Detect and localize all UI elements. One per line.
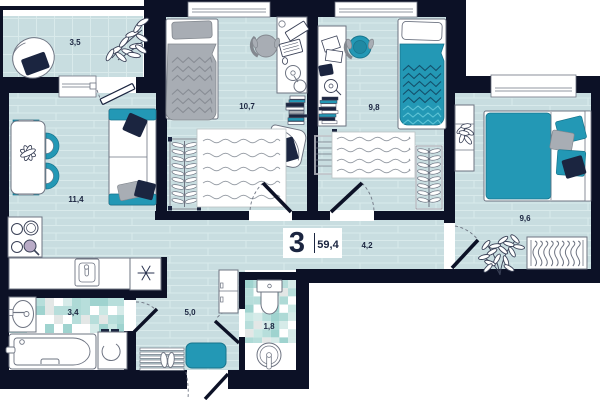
svg-text:1,8: 1,8	[263, 322, 275, 331]
svg-text:5,0: 5,0	[184, 308, 196, 317]
svg-text:9,8: 9,8	[368, 103, 380, 112]
svg-text:9,6: 9,6	[519, 214, 531, 223]
svg-text:3,4: 3,4	[67, 308, 79, 317]
svg-text:3,5: 3,5	[69, 38, 81, 47]
svg-text:59,4: 59,4	[317, 239, 339, 251]
svg-text:10,7: 10,7	[239, 102, 255, 111]
svg-text:11,4: 11,4	[68, 195, 84, 204]
svg-text:4,2: 4,2	[361, 241, 373, 250]
svg-text:3: 3	[289, 227, 305, 259]
